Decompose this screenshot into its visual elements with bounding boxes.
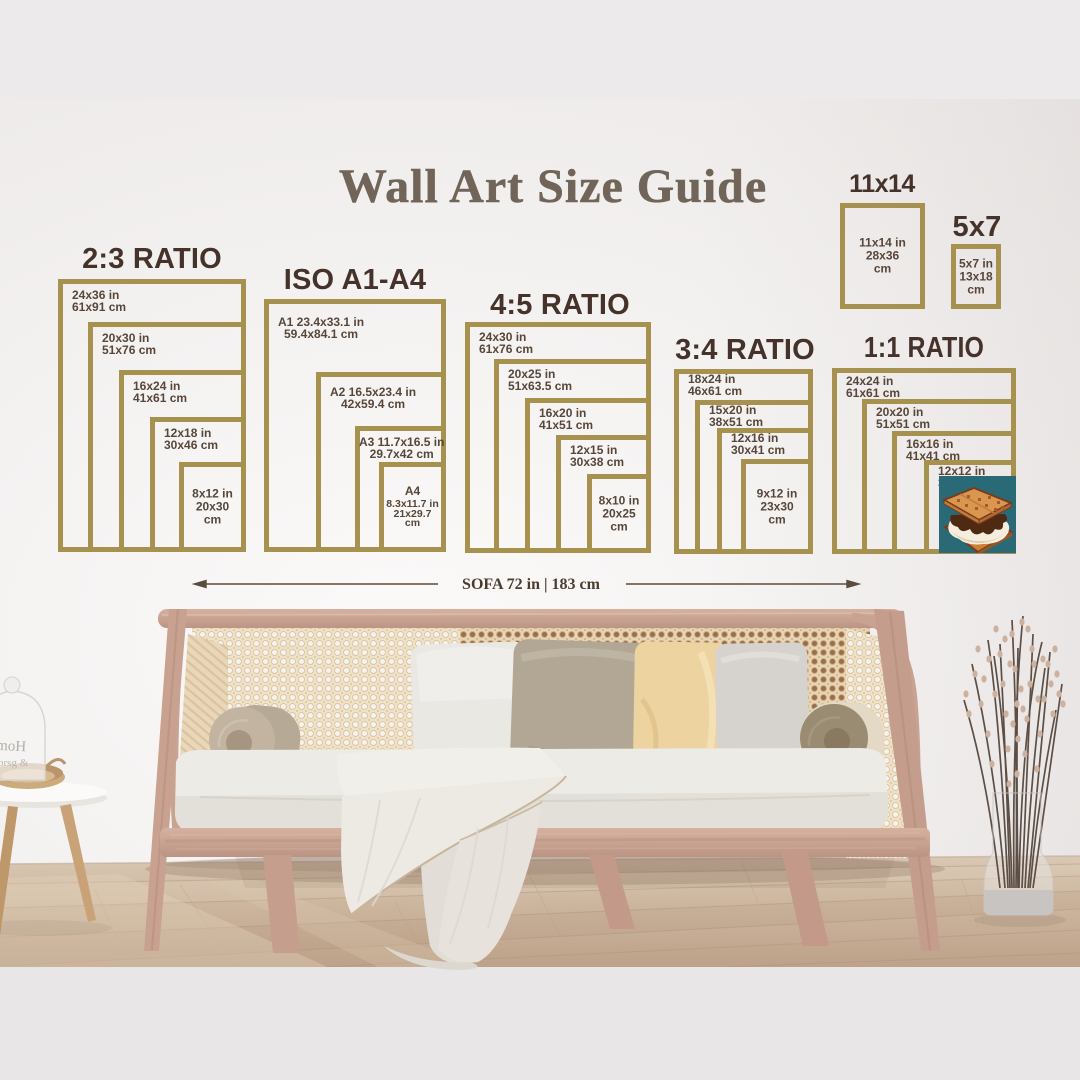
svg-text:moH: moH [0, 738, 27, 756]
svg-text:brsg &: brsg & [0, 757, 29, 769]
svg-text:SOFA 72 in | 183 cm: SOFA 72 in | 183 cm [462, 576, 601, 593]
